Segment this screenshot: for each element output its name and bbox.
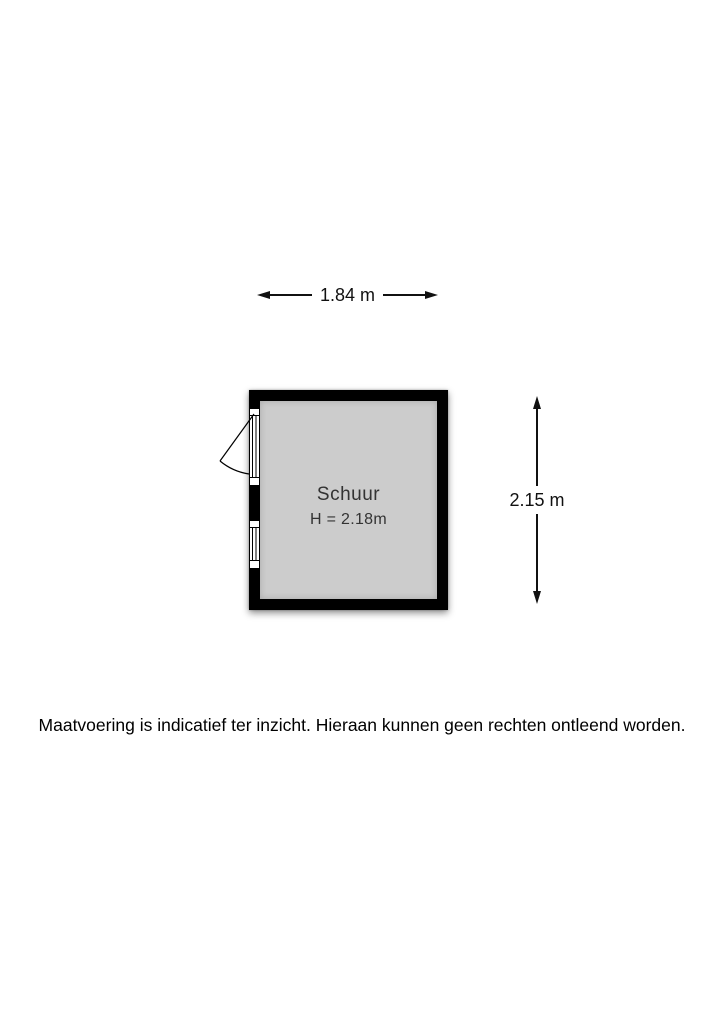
door-jamb: [249, 477, 260, 486]
arrowhead-up-icon: [533, 396, 541, 409]
door-jamb: [249, 408, 260, 416]
arrowhead-down-icon: [533, 591, 541, 604]
disclaimer-text: Maatvoering is indicatief ter inzicht. H…: [0, 713, 724, 737]
dimension-line: [270, 294, 312, 296]
dimension-line: [536, 514, 538, 591]
room-ceiling-height-label: H = 2.18m: [310, 509, 387, 531]
width-dimension-label: 1.84 m: [312, 283, 383, 307]
arrowhead-right-icon: [425, 291, 438, 299]
width-dimension: 1.84 m: [257, 283, 438, 307]
dimension-line: [536, 409, 538, 486]
window-panel: [249, 528, 260, 560]
height-dimension: 2.15 m: [502, 396, 572, 604]
arrowhead-left-icon: [257, 291, 270, 299]
window-jamb: [249, 560, 260, 569]
height-dimension-label: 2.15 m: [509, 489, 564, 511]
dimension-line: [383, 294, 425, 296]
room-name-label: Schuur: [317, 483, 380, 507]
room-schuur: Schuur H = 2.18m: [249, 390, 448, 610]
door-panel: [249, 416, 260, 477]
window-jamb: [249, 520, 260, 528]
